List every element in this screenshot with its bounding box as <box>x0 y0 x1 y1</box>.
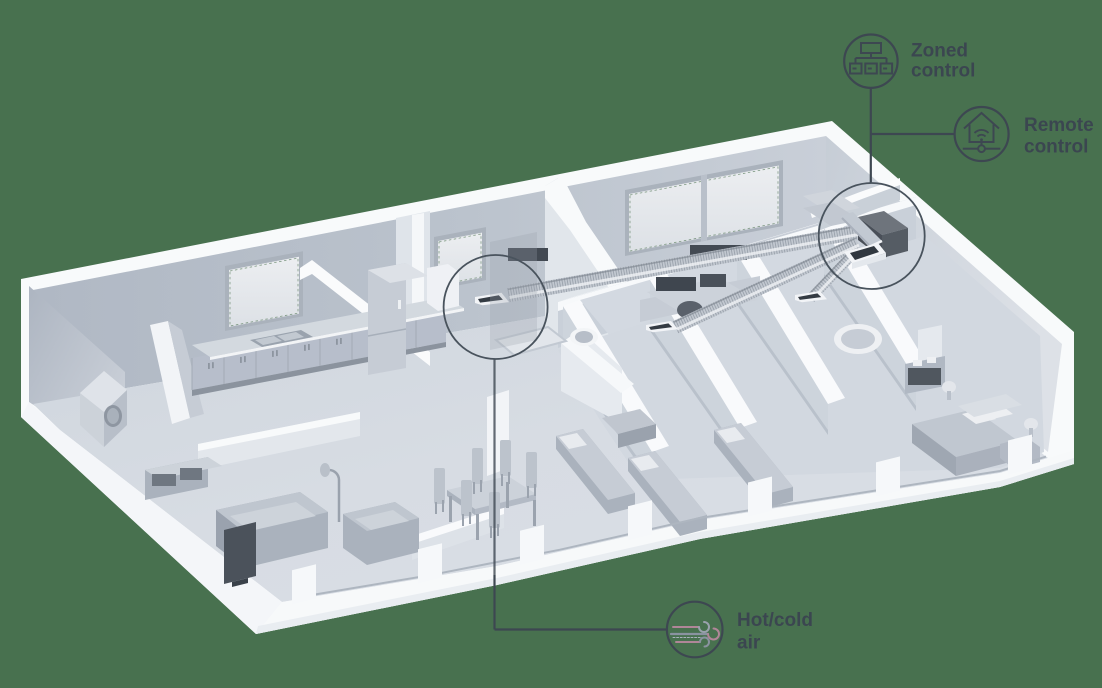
svg-text:control: control <box>911 61 975 82</box>
svg-text:Remote: Remote <box>1024 115 1094 136</box>
svg-text:Zoned: Zoned <box>911 41 968 62</box>
svg-text:control: control <box>1024 137 1088 158</box>
svg-text:Hot/cold: Hot/cold <box>737 610 813 631</box>
svg-text:air: air <box>737 633 761 654</box>
